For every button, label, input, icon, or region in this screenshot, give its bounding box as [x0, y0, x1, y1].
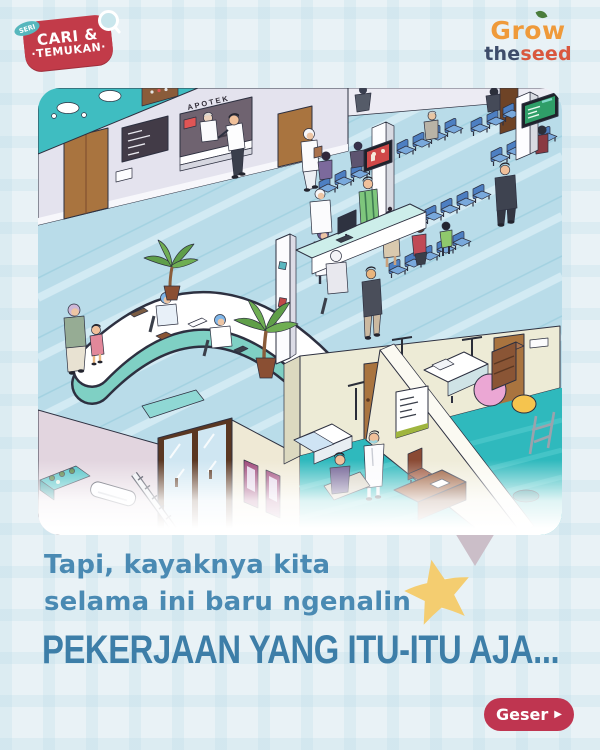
bottom-fade	[38, 460, 562, 535]
arrow-right-icon: ▶	[554, 710, 562, 720]
magnifier-icon	[98, 10, 119, 31]
caption-text: Tapi, kayaknya kita selama ini baru ngen…	[44, 547, 411, 621]
brand-grow-pre: Gr	[490, 16, 524, 45]
geser-button[interactable]: Geser ▶	[484, 698, 574, 731]
brand-logo: Grow theseed	[478, 18, 578, 64]
brand-seed: seed	[520, 43, 571, 65]
caption-line1: Tapi, kayaknya kita	[44, 547, 411, 584]
headline-text: PEKERJAAN YANG ITU-ITU AJA...	[42, 628, 559, 673]
geser-label: Geser	[496, 705, 548, 724]
hospital-scene: APOTEK	[38, 88, 562, 535]
series-badge: SERI CARI & ·TEMUKAN·	[20, 16, 116, 70]
caption-line2: selama ini baru ngenalin	[44, 584, 411, 621]
far-person	[355, 93, 371, 112]
hospital-illustration-card: APOTEK	[38, 88, 562, 535]
brand-grow-o-with-leaf-icon: o	[524, 16, 542, 45]
brand-word-theseed: theseed	[478, 45, 578, 64]
brand-word-grow: Grow	[478, 18, 578, 43]
exercise-ball-yellow	[512, 395, 536, 413]
brand-grow-post: w	[542, 16, 566, 45]
wall-art-teal	[279, 262, 287, 270]
brand-the: the	[484, 43, 520, 65]
